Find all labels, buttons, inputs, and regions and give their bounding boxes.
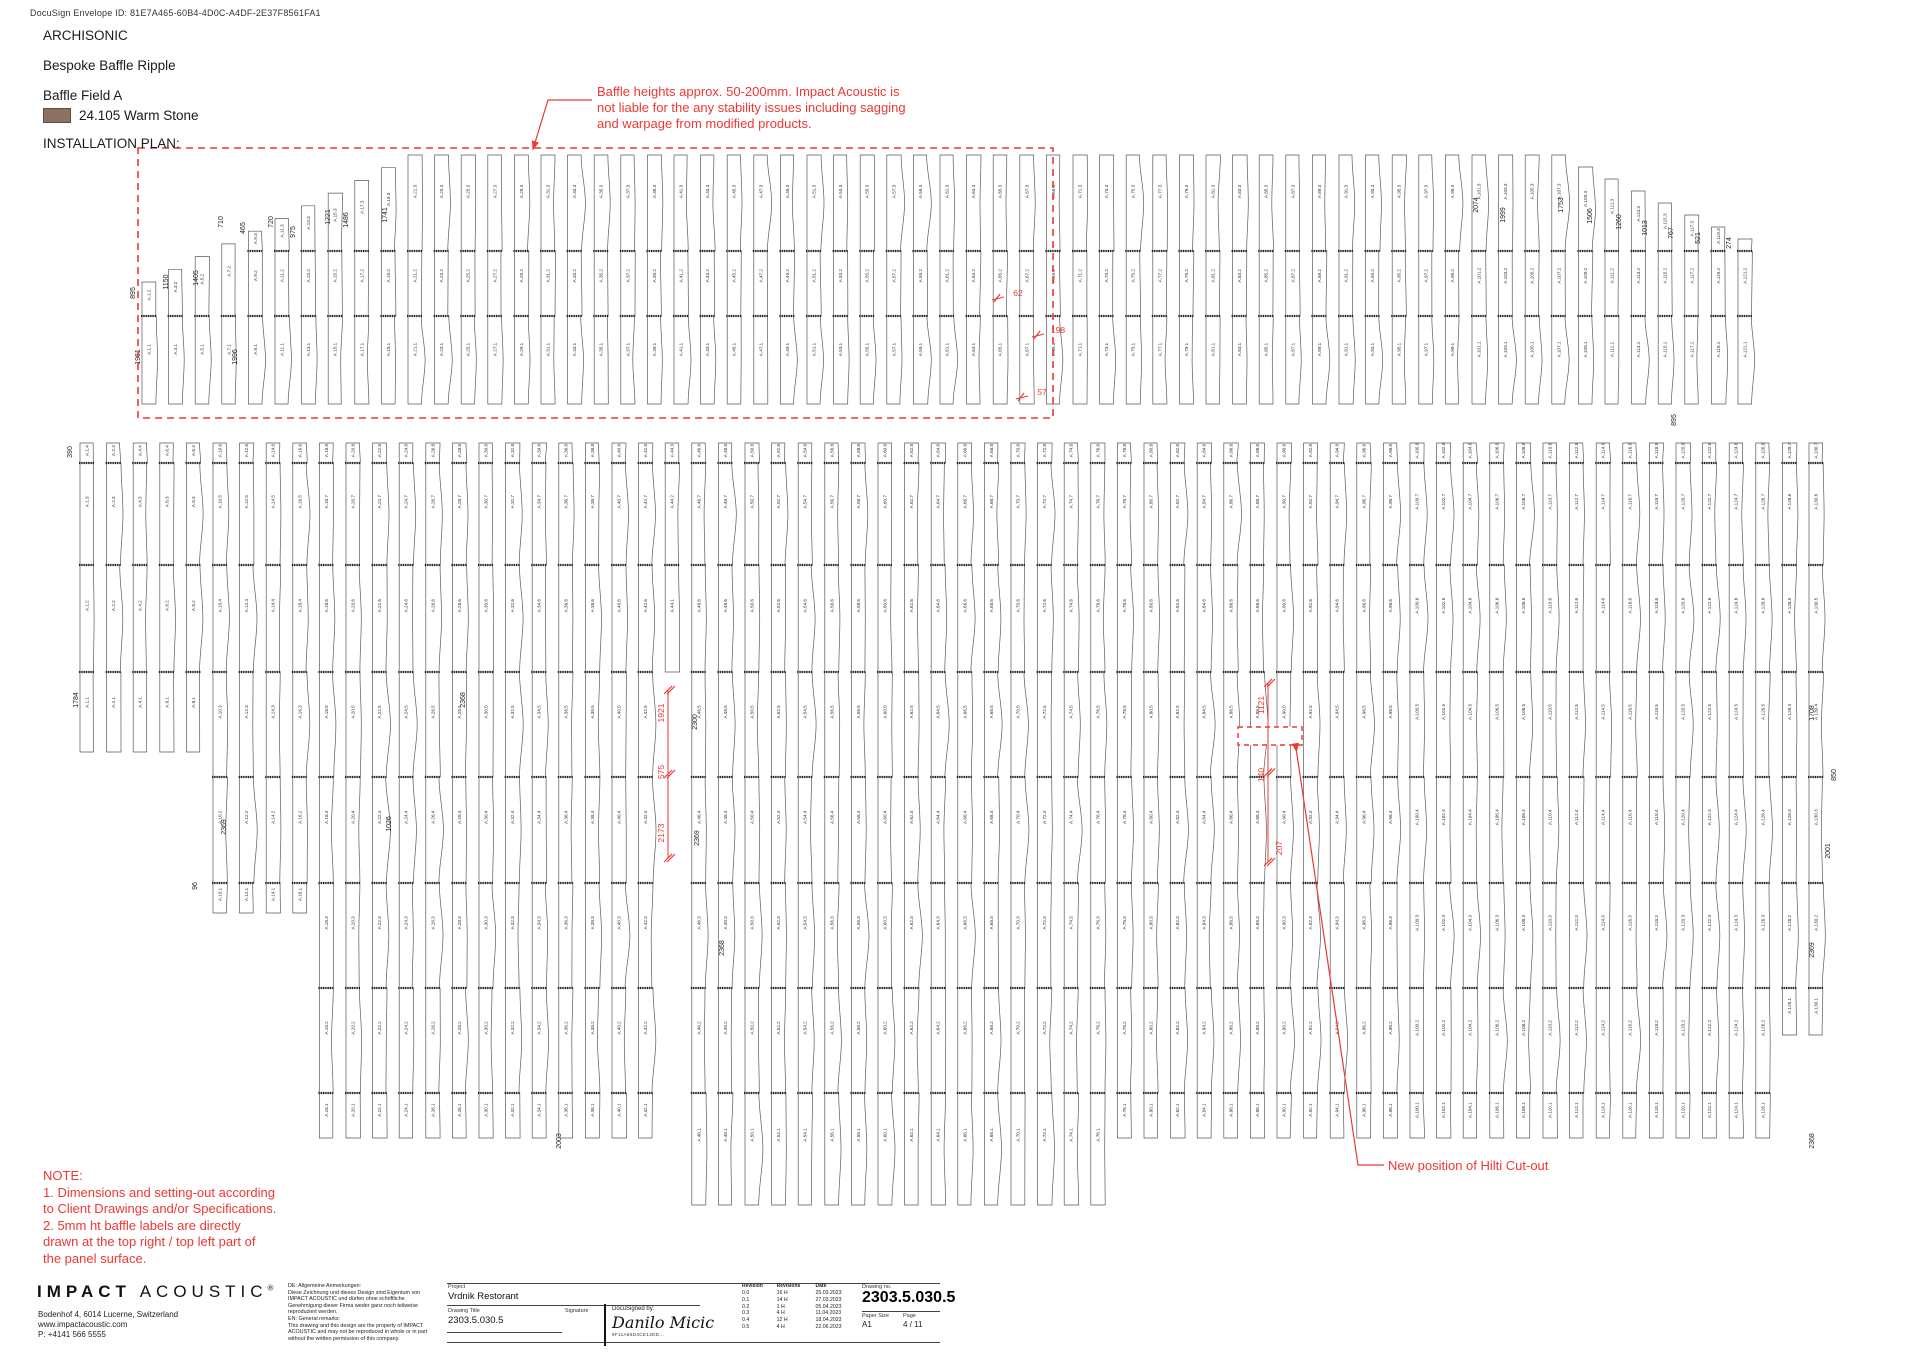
svg-text:A.108.8: A.108.8 bbox=[1521, 442, 1526, 458]
svg-text:A.95.1: A.95.1 bbox=[1397, 342, 1402, 356]
svg-text:A.116.6: A.116.6 bbox=[1627, 597, 1632, 613]
svg-text:A.76.2: A.76.2 bbox=[1095, 1021, 1100, 1035]
svg-text:A.55.3: A.55.3 bbox=[865, 184, 870, 198]
svg-text:A.54.4: A.54.4 bbox=[803, 810, 808, 824]
svg-text:A.10.1: A.10.1 bbox=[218, 887, 223, 901]
svg-text:A.83.3: A.83.3 bbox=[1237, 184, 1242, 198]
svg-text:A.76.6: A.76.6 bbox=[1095, 599, 1100, 613]
svg-text:A.30.5: A.30.5 bbox=[484, 705, 489, 719]
svg-text:2001: 2001 bbox=[1825, 843, 1832, 859]
svg-text:A.98.4: A.98.4 bbox=[1388, 810, 1393, 824]
svg-text:A.116.7: A.116.7 bbox=[1627, 494, 1632, 510]
svg-text:A.122.3: A.122.3 bbox=[1707, 915, 1712, 931]
svg-text:A.52.4: A.52.4 bbox=[776, 810, 781, 824]
svg-text:A.39.1: A.39.1 bbox=[652, 342, 657, 356]
svg-text:A.90.4: A.90.4 bbox=[1282, 810, 1287, 824]
svg-text:A.121.1: A.121.1 bbox=[1743, 341, 1748, 357]
svg-text:A.8.2: A.8.2 bbox=[191, 600, 196, 611]
svg-text:A.128.6: A.128.6 bbox=[1787, 493, 1792, 509]
svg-text:A.30.4: A.30.4 bbox=[484, 810, 489, 824]
svg-text:A.72.6: A.72.6 bbox=[1042, 599, 1047, 613]
svg-text:A.52.8: A.52.8 bbox=[776, 444, 781, 458]
remarks-line: reproduziert werden. bbox=[288, 1309, 438, 1316]
svg-text:A.86.8: A.86.8 bbox=[1228, 444, 1233, 458]
svg-text:A.62.7: A.62.7 bbox=[909, 495, 914, 509]
svg-text:A.100.5: A.100.5 bbox=[1415, 704, 1420, 720]
svg-text:A.36.7: A.36.7 bbox=[563, 495, 568, 509]
svg-text:521: 521 bbox=[1695, 232, 1702, 244]
svg-text:A.42.8: A.42.8 bbox=[643, 444, 648, 458]
svg-text:A.96.2: A.96.2 bbox=[1361, 1021, 1366, 1035]
svg-text:A.6.4: A.6.4 bbox=[164, 445, 169, 456]
svg-text:A.118.2: A.118.2 bbox=[1654, 1020, 1659, 1036]
svg-text:A.60.1: A.60.1 bbox=[883, 1128, 888, 1142]
svg-text:A.122.2: A.122.2 bbox=[1707, 1020, 1712, 1036]
svg-text:A.118.1: A.118.1 bbox=[1654, 1102, 1659, 1118]
svg-text:A.109.3: A.109.3 bbox=[1583, 191, 1588, 207]
svg-text:A.22.1: A.22.1 bbox=[377, 1103, 382, 1117]
svg-text:A.24.2: A.24.2 bbox=[404, 1021, 409, 1035]
svg-text:A.106.3: A.106.3 bbox=[1494, 915, 1499, 931]
svg-text:A.109.1: A.109.1 bbox=[1583, 341, 1588, 357]
svg-text:A.104.8: A.104.8 bbox=[1468, 442, 1473, 458]
svg-text:A.64.7: A.64.7 bbox=[936, 495, 941, 509]
svg-text:A.92.4: A.92.4 bbox=[1308, 810, 1313, 824]
svg-text:A.124.6: A.124.6 bbox=[1734, 597, 1739, 613]
svg-text:A.42.7: A.42.7 bbox=[643, 495, 648, 509]
svg-text:A.86.2: A.86.2 bbox=[1228, 1021, 1233, 1035]
svg-text:A.94.1: A.94.1 bbox=[1335, 1103, 1340, 1117]
docusigned-by-label: DocuSigned by: bbox=[612, 1306, 722, 1312]
svg-text:A.62.8: A.62.8 bbox=[909, 444, 914, 458]
svg-text:A.82.2: A.82.2 bbox=[1175, 1021, 1180, 1035]
svg-text:A.34.8: A.34.8 bbox=[537, 444, 542, 458]
svg-text:A.71.1: A.71.1 bbox=[1078, 342, 1083, 356]
svg-text:A.59.2: A.59.2 bbox=[918, 269, 923, 283]
logo-registered-mark: ® bbox=[268, 1283, 274, 1292]
page-value: 4 / 11 bbox=[903, 1320, 922, 1329]
svg-text:A.83.2: A.83.2 bbox=[1237, 269, 1242, 283]
svg-text:A.103.3: A.103.3 bbox=[1503, 183, 1508, 199]
svg-text:A.108.1: A.108.1 bbox=[1521, 1102, 1526, 1118]
svg-text:A.46.4: A.46.4 bbox=[696, 810, 701, 824]
svg-text:A.1.4: A.1.4 bbox=[85, 445, 90, 456]
svg-text:A.105.1: A.105.1 bbox=[1530, 341, 1535, 357]
svg-text:A.62.2: A.62.2 bbox=[909, 1021, 914, 1035]
svg-text:A.16.5: A.16.5 bbox=[297, 495, 302, 509]
svg-text:A.51.3: A.51.3 bbox=[812, 184, 817, 198]
svg-text:A.27.3: A.27.3 bbox=[492, 184, 497, 198]
svg-text:A.62.1: A.62.1 bbox=[909, 1128, 914, 1142]
svg-text:A.12.3: A.12.3 bbox=[244, 705, 249, 719]
svg-text:A.46.3: A.46.3 bbox=[696, 916, 701, 930]
svg-text:A.102.5: A.102.5 bbox=[1441, 704, 1446, 720]
svg-text:A.80.2: A.80.2 bbox=[1149, 1021, 1154, 1035]
svg-text:A.32.3: A.32.3 bbox=[510, 916, 515, 930]
svg-text:A.32.1: A.32.1 bbox=[510, 1103, 515, 1117]
svg-text:A.101.1: A.101.1 bbox=[1477, 341, 1482, 357]
svg-text:A.47.3: A.47.3 bbox=[758, 184, 763, 198]
svg-text:A.46.1: A.46.1 bbox=[696, 1128, 701, 1142]
svg-text:A.102.6: A.102.6 bbox=[1441, 597, 1446, 613]
svg-text:2173: 2173 bbox=[656, 823, 666, 842]
svg-text:A.86.4: A.86.4 bbox=[1228, 810, 1233, 824]
svg-text:A.100.1: A.100.1 bbox=[1415, 1102, 1420, 1118]
svg-text:A.12.1: A.12.1 bbox=[244, 887, 249, 901]
material-swatch bbox=[43, 108, 71, 123]
svg-text:A.18.2: A.18.2 bbox=[324, 1021, 329, 1035]
svg-text:A.118.4: A.118.4 bbox=[1654, 809, 1659, 825]
svg-text:A.8.4: A.8.4 bbox=[191, 445, 196, 456]
svg-text:A.96.5: A.96.5 bbox=[1361, 705, 1366, 719]
svg-text:A.84.3: A.84.3 bbox=[1202, 916, 1207, 930]
svg-text:A.105.2: A.105.2 bbox=[1530, 267, 1535, 283]
company-address: Bodenhof 4, 6014 Lucerne, Switzerland ww… bbox=[38, 1310, 178, 1340]
material-name: 24.105 Warm Stone bbox=[79, 108, 199, 123]
svg-text:A.31.1: A.31.1 bbox=[546, 342, 551, 356]
svg-text:A.76.4: A.76.4 bbox=[1095, 810, 1100, 824]
svg-text:A.40.2: A.40.2 bbox=[617, 1021, 622, 1035]
svg-text:A.10.3: A.10.3 bbox=[218, 705, 223, 719]
svg-text:A.20.8: A.20.8 bbox=[351, 444, 356, 458]
svg-text:A.18.1: A.18.1 bbox=[324, 1103, 329, 1117]
svg-text:A.74.1: A.74.1 bbox=[1069, 1128, 1074, 1142]
svg-text:A.40.6: A.40.6 bbox=[617, 599, 622, 613]
svg-text:A.74.4: A.74.4 bbox=[1069, 810, 1074, 824]
svg-text:A.14.1: A.14.1 bbox=[271, 887, 276, 901]
svg-text:1708: 1708 bbox=[1809, 705, 1816, 721]
svg-text:A.54.2: A.54.2 bbox=[803, 1021, 808, 1035]
svg-text:A.53.2: A.53.2 bbox=[838, 269, 843, 283]
svg-text:A.68.2: A.68.2 bbox=[989, 1021, 994, 1035]
svg-text:A.30.1: A.30.1 bbox=[484, 1103, 489, 1117]
svg-text:A.91.1: A.91.1 bbox=[1344, 342, 1349, 356]
revision-row: 0.412 H18.04.2023 bbox=[742, 1317, 858, 1324]
svg-text:A.72.3: A.72.3 bbox=[1042, 916, 1047, 930]
svg-text:A.12.4: A.12.4 bbox=[244, 599, 249, 613]
svg-text:A.22.2: A.22.2 bbox=[377, 1021, 382, 1035]
svg-text:A.66.5: A.66.5 bbox=[962, 705, 967, 719]
svg-text:A.74.2: A.74.2 bbox=[1069, 1021, 1074, 1035]
svg-text:A.97.3: A.97.3 bbox=[1423, 184, 1428, 198]
svg-text:A.54.3: A.54.3 bbox=[803, 916, 808, 930]
svg-text:A.30.7: A.30.7 bbox=[484, 495, 489, 509]
svg-text:1784: 1784 bbox=[73, 692, 80, 708]
revision-row: 0.54 H22.06.2023 bbox=[742, 1324, 858, 1331]
svg-text:A.116.2: A.116.2 bbox=[1627, 1020, 1632, 1036]
svg-text:A.16.1: A.16.1 bbox=[297, 887, 302, 901]
svg-text:A.70.2: A.70.2 bbox=[1016, 1021, 1021, 1035]
svg-text:A.56.4: A.56.4 bbox=[829, 810, 834, 824]
svg-text:A.26.8: A.26.8 bbox=[430, 444, 435, 458]
svg-text:A.41.2: A.41.2 bbox=[679, 269, 684, 283]
svg-text:A.84.6: A.84.6 bbox=[1202, 599, 1207, 613]
svg-text:A.1.1: A.1.1 bbox=[147, 344, 152, 355]
svg-text:A.114.1: A.114.1 bbox=[1601, 1102, 1606, 1118]
svg-text:A.72.2: A.72.2 bbox=[1042, 1021, 1047, 1035]
svg-text:A.117.2: A.117.2 bbox=[1689, 268, 1694, 284]
svg-text:A.104.2: A.104.2 bbox=[1468, 1020, 1473, 1036]
svg-text:A.50.4: A.50.4 bbox=[750, 810, 755, 824]
svg-text:A.54.7: A.54.7 bbox=[803, 495, 808, 509]
svg-text:2368: 2368 bbox=[460, 692, 467, 708]
svg-text:A.21.3: A.21.3 bbox=[413, 184, 418, 198]
svg-text:A.18.4: A.18.4 bbox=[324, 810, 329, 824]
svg-text:A.12.2: A.12.2 bbox=[244, 810, 249, 824]
svg-text:A.92.5: A.92.5 bbox=[1308, 705, 1313, 719]
svg-text:A.47.2: A.47.2 bbox=[758, 269, 763, 283]
svg-text:A.104.4: A.104.4 bbox=[1468, 809, 1473, 825]
svg-text:A.84.8: A.84.8 bbox=[1202, 444, 1207, 458]
svg-text:A.66.3: A.66.3 bbox=[962, 916, 967, 930]
svg-text:A.11.2: A.11.2 bbox=[280, 269, 285, 282]
svg-text:A.97.2: A.97.2 bbox=[1423, 269, 1428, 283]
svg-text:A.46.2: A.46.2 bbox=[696, 1021, 701, 1035]
remarks-line: ACOUSTIC and may not be reproduced in wh… bbox=[288, 1329, 438, 1336]
svg-text:A.22.5: A.22.5 bbox=[377, 705, 382, 719]
svg-text:A.45.3: A.45.3 bbox=[732, 184, 737, 198]
svg-text:A.109.2: A.109.2 bbox=[1583, 267, 1588, 283]
svg-text:A.78.4: A.78.4 bbox=[1122, 810, 1127, 824]
svg-text:A.111.2: A.111.2 bbox=[1610, 268, 1615, 284]
svg-text:A.58.4: A.58.4 bbox=[856, 810, 861, 824]
svg-text:A.36.2: A.36.2 bbox=[563, 1021, 568, 1035]
svg-text:A.6.1: A.6.1 bbox=[164, 697, 169, 708]
svg-text:A.126.2: A.126.2 bbox=[1760, 1020, 1765, 1036]
svg-text:A.119.1: A.119.1 bbox=[1716, 341, 1721, 357]
svg-text:A.112.4: A.112.4 bbox=[1574, 809, 1579, 825]
svg-text:A.24.8: A.24.8 bbox=[404, 444, 409, 458]
svg-text:A.44.1: A.44.1 bbox=[670, 599, 675, 613]
svg-text:A.2.2: A.2.2 bbox=[111, 600, 116, 611]
svg-text:A.2.1: A.2.1 bbox=[111, 697, 116, 708]
svg-text:A.110.6: A.110.6 bbox=[1548, 597, 1553, 613]
svg-text:A.76.1: A.76.1 bbox=[1095, 1128, 1100, 1142]
svg-text:A.15.1: A.15.1 bbox=[333, 342, 338, 356]
svg-text:A.106.4: A.106.4 bbox=[1494, 809, 1499, 825]
svg-text:A.59.3: A.59.3 bbox=[918, 184, 923, 198]
svg-text:A.50.2: A.50.2 bbox=[750, 1021, 755, 1035]
svg-text:A.62.5: A.62.5 bbox=[909, 705, 914, 719]
revision-row: 0.016 H25.03.2023 bbox=[742, 1290, 858, 1297]
svg-text:A.28.2: A.28.2 bbox=[457, 1021, 462, 1035]
svg-text:A.36.5: A.36.5 bbox=[563, 705, 568, 719]
svg-text:A.94.5: A.94.5 bbox=[1335, 705, 1340, 719]
svg-text:A.52.2: A.52.2 bbox=[776, 1021, 781, 1035]
svg-text:A.98.6: A.98.6 bbox=[1388, 599, 1393, 613]
svg-text:A.64.2: A.64.2 bbox=[936, 1021, 941, 1035]
svg-text:A.33.3: A.33.3 bbox=[572, 184, 577, 198]
svg-text:A.85.2: A.85.2 bbox=[1264, 269, 1269, 283]
svg-text:A.116.1: A.116.1 bbox=[1627, 1102, 1632, 1118]
svg-text:A.73.1: A.73.1 bbox=[1104, 342, 1109, 356]
svg-text:A.63.3: A.63.3 bbox=[971, 184, 976, 198]
svg-text:A.57.2: A.57.2 bbox=[891, 269, 896, 283]
svg-text:A.2.3: A.2.3 bbox=[111, 496, 116, 507]
svg-text:A.84.1: A.84.1 bbox=[1202, 1103, 1207, 1117]
svg-text:A.103.1: A.103.1 bbox=[1503, 341, 1508, 357]
svg-text:A.58.5: A.58.5 bbox=[856, 705, 861, 719]
svg-text:A.99.2: A.99.2 bbox=[1450, 269, 1455, 283]
svg-text:A.38.8: A.38.8 bbox=[590, 444, 595, 458]
svg-text:A.35.1: A.35.1 bbox=[599, 342, 604, 356]
svg-text:A.100.3: A.100.3 bbox=[1415, 915, 1420, 931]
svg-text:A.96.4: A.96.4 bbox=[1361, 810, 1366, 824]
svg-text:A.76.3: A.76.3 bbox=[1095, 916, 1100, 930]
svg-text:A.93.3: A.93.3 bbox=[1370, 184, 1375, 198]
svg-text:A.104.1: A.104.1 bbox=[1468, 1102, 1473, 1118]
svg-text:A.65.3: A.65.3 bbox=[998, 184, 1003, 198]
svg-text:A.122.8: A.122.8 bbox=[1707, 442, 1712, 458]
svg-text:A.130.2: A.130.2 bbox=[1814, 915, 1819, 931]
address-line: Bodenhof 4, 6014 Lucerne, Switzerland bbox=[38, 1310, 178, 1320]
svg-text:A.24.5: A.24.5 bbox=[404, 705, 409, 719]
svg-text:2369: 2369 bbox=[1809, 942, 1816, 958]
svg-text:140: 140 bbox=[1256, 768, 1266, 782]
svg-text:A.87.1: A.87.1 bbox=[1290, 342, 1295, 356]
svg-text:A.89.2: A.89.2 bbox=[1317, 269, 1322, 283]
svg-text:A.56.5: A.56.5 bbox=[829, 705, 834, 719]
svg-text:A.120.7: A.120.7 bbox=[1681, 493, 1686, 509]
svg-text:A.84.5: A.84.5 bbox=[1202, 705, 1207, 719]
svg-text:A.24.3: A.24.3 bbox=[404, 916, 409, 930]
svg-text:A.46.6: A.46.6 bbox=[696, 599, 701, 613]
svg-text:A.7.1: A.7.1 bbox=[226, 344, 231, 355]
remarks-line: This drawing and this design are the pro… bbox=[288, 1323, 438, 1330]
svg-text:575: 575 bbox=[656, 765, 666, 779]
svg-text:A.10.6: A.10.6 bbox=[218, 444, 223, 458]
svg-text:A.21.1: A.21.1 bbox=[413, 342, 418, 356]
svg-text:A.102.7: A.102.7 bbox=[1441, 493, 1446, 509]
svg-text:A.114.6: A.114.6 bbox=[1601, 597, 1606, 613]
svg-text:A.108.7: A.108.7 bbox=[1521, 493, 1526, 509]
svg-text:A.76.5: A.76.5 bbox=[1095, 705, 1100, 719]
svg-text:A.9.2: A.9.2 bbox=[253, 270, 258, 281]
svg-text:A.42.2: A.42.2 bbox=[643, 1021, 648, 1035]
svg-text:198: 198 bbox=[1051, 325, 1065, 335]
svg-text:A.120.2: A.120.2 bbox=[1681, 1020, 1686, 1036]
svg-text:A.81.1: A.81.1 bbox=[1211, 342, 1216, 356]
svg-text:A.85.3: A.85.3 bbox=[1264, 184, 1269, 198]
svg-text:A.98.7: A.98.7 bbox=[1388, 495, 1393, 509]
svg-text:A.71.2: A.71.2 bbox=[1078, 269, 1083, 283]
svg-text:A.38.2: A.38.2 bbox=[590, 1021, 595, 1035]
svg-text:A.29.2: A.29.2 bbox=[519, 269, 524, 283]
svg-text:A.70.1: A.70.1 bbox=[1016, 1128, 1021, 1142]
svg-text:A.88.8: A.88.8 bbox=[1255, 444, 1260, 458]
svg-text:A.58.8: A.58.8 bbox=[856, 444, 861, 458]
svg-text:A.22.6: A.22.6 bbox=[377, 599, 382, 613]
svg-text:A.48.2: A.48.2 bbox=[723, 1021, 728, 1035]
svg-text:A.130.3: A.130.3 bbox=[1814, 809, 1819, 825]
svg-text:895: 895 bbox=[130, 287, 137, 299]
svg-text:A.31.2: A.31.2 bbox=[546, 269, 551, 283]
note-line: to Client Drawings and/or Specifications… bbox=[43, 1201, 276, 1218]
svg-text:A.102.3: A.102.3 bbox=[1441, 915, 1446, 931]
svg-text:A.5.2: A.5.2 bbox=[200, 273, 205, 284]
svg-text:A.1.2: A.1.2 bbox=[147, 289, 152, 300]
baffle-height-warning: Baffle heights approx. 50-200mm. Impact … bbox=[597, 84, 906, 132]
svg-text:A.106.8: A.106.8 bbox=[1494, 442, 1499, 458]
svg-text:A.28.3: A.28.3 bbox=[457, 916, 462, 930]
svg-text:A.19.1: A.19.1 bbox=[386, 342, 391, 356]
svg-text:A.72.8: A.72.8 bbox=[1042, 444, 1047, 458]
note-title: NOTE: bbox=[43, 1168, 276, 1185]
svg-text:A.89.3: A.89.3 bbox=[1317, 184, 1322, 198]
revision-row: 0.114 H27.03.2023 bbox=[742, 1297, 858, 1304]
project-value: Vrdnik Restorant bbox=[448, 1291, 518, 1302]
svg-text:A.15.2: A.15.2 bbox=[333, 269, 338, 283]
svg-text:A.42.5: A.42.5 bbox=[643, 705, 648, 719]
svg-text:A.66.1: A.66.1 bbox=[962, 1128, 967, 1142]
svg-text:A.53.3: A.53.3 bbox=[838, 184, 843, 198]
svg-text:A.49.2: A.49.2 bbox=[785, 269, 790, 283]
svg-text:A.80.7: A.80.7 bbox=[1149, 495, 1154, 509]
svg-text:A.59.1: A.59.1 bbox=[918, 342, 923, 356]
svg-text:A.74.6: A.74.6 bbox=[1069, 599, 1074, 613]
svg-text:A.106.6: A.106.6 bbox=[1494, 597, 1499, 613]
svg-text:A.13.3: A.13.3 bbox=[306, 216, 311, 230]
note-line: the panel surface. bbox=[43, 1251, 276, 1268]
svg-text:A.108.4: A.108.4 bbox=[1521, 809, 1526, 825]
project-label: Project bbox=[448, 1284, 465, 1290]
svg-text:A.54.5: A.54.5 bbox=[803, 705, 808, 719]
svg-text:A.19.2: A.19.2 bbox=[386, 269, 391, 283]
svg-text:A.121.2: A.121.2 bbox=[1743, 267, 1748, 283]
svg-text:A.78.1: A.78.1 bbox=[1122, 1103, 1127, 1117]
svg-text:A.5.1: A.5.1 bbox=[200, 344, 205, 355]
svg-text:A.95.3: A.95.3 bbox=[1397, 184, 1402, 198]
svg-text:A.120.8: A.120.8 bbox=[1681, 442, 1686, 458]
svg-text:A.52.5: A.52.5 bbox=[776, 705, 781, 719]
svg-text:A.114.4: A.114.4 bbox=[1601, 809, 1606, 825]
svg-text:A.98.1: A.98.1 bbox=[1388, 1103, 1393, 1117]
svg-text:A.60.8: A.60.8 bbox=[883, 444, 888, 458]
svg-text:A.14.5: A.14.5 bbox=[271, 495, 276, 509]
svg-text:A.79.1: A.79.1 bbox=[1184, 342, 1189, 356]
svg-text:390: 390 bbox=[67, 446, 74, 458]
svg-text:A.84.4: A.84.4 bbox=[1202, 810, 1207, 824]
svg-text:A.15.3: A.15.3 bbox=[333, 208, 338, 222]
svg-text:1121: 1121 bbox=[1256, 696, 1266, 715]
svg-text:A.16.4: A.16.4 bbox=[297, 599, 302, 613]
svg-text:A.53.1: A.53.1 bbox=[838, 342, 843, 356]
warning-line: not liable for the any stability issues … bbox=[597, 100, 906, 116]
svg-text:2003: 2003 bbox=[556, 1133, 563, 1149]
svg-text:A.112.8: A.112.8 bbox=[1574, 442, 1579, 458]
docusign-signature-box: DocuSigned by: Danilo Micic 9F11A86D4CE1… bbox=[604, 1304, 722, 1346]
svg-text:A.36.1: A.36.1 bbox=[563, 1103, 568, 1117]
svg-text:A.67.1: A.67.1 bbox=[1024, 342, 1029, 356]
svg-text:A.91.2: A.91.2 bbox=[1344, 269, 1349, 283]
svg-text:A.120.5: A.120.5 bbox=[1681, 704, 1686, 720]
svg-text:A.107.1: A.107.1 bbox=[1556, 341, 1561, 357]
rev-col-header: Revisions bbox=[777, 1283, 816, 1290]
svg-text:A.96.7: A.96.7 bbox=[1361, 495, 1366, 509]
svg-text:A.58.2: A.58.2 bbox=[856, 1021, 861, 1035]
svg-text:A.40.3: A.40.3 bbox=[617, 916, 622, 930]
svg-text:A.22.4: A.22.4 bbox=[377, 810, 382, 824]
svg-text:A.28.6: A.28.6 bbox=[457, 599, 462, 613]
svg-text:1026: 1026 bbox=[386, 816, 393, 832]
svg-text:A.83.1: A.83.1 bbox=[1237, 342, 1242, 356]
note-line: 2. 5mm ht baffle labels are directly bbox=[43, 1218, 276, 1235]
svg-text:A.82.7: A.82.7 bbox=[1175, 495, 1180, 509]
svg-text:A.78.7: A.78.7 bbox=[1122, 495, 1127, 509]
svg-text:A.102.4: A.102.4 bbox=[1441, 809, 1446, 825]
svg-text:A.124.2: A.124.2 bbox=[1734, 1020, 1739, 1036]
svg-text:A.64.6: A.64.6 bbox=[936, 599, 941, 613]
